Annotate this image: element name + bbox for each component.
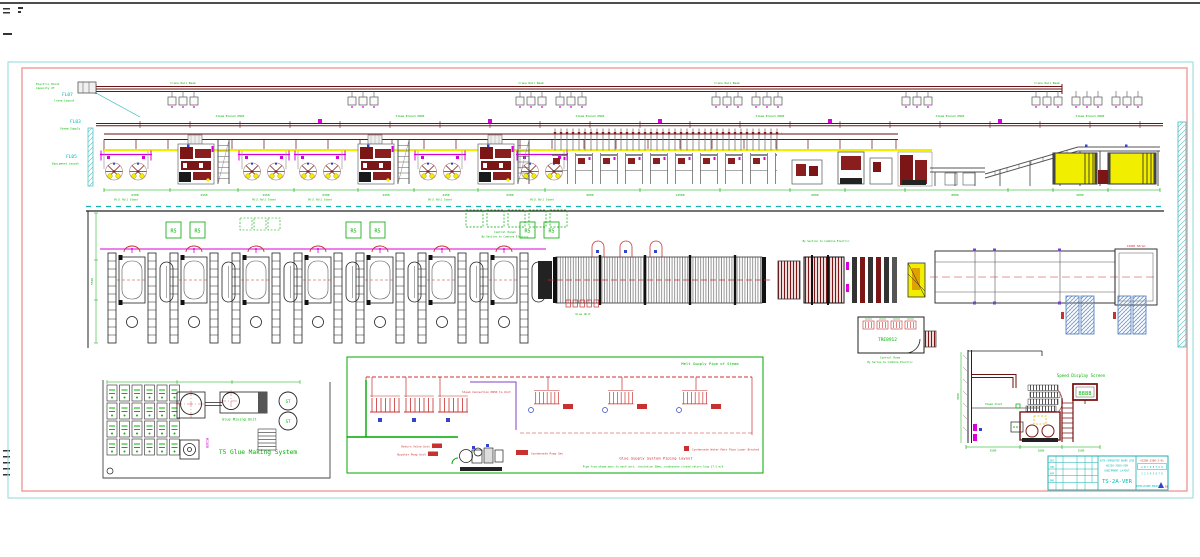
pallet-stacks: [1061, 296, 1146, 334]
tb-version: TS-2A-VER: [1102, 479, 1132, 485]
mill-roll-station: [414, 151, 466, 181]
tb-cell: PRO: [1050, 480, 1055, 483]
dim-label: 9000: [586, 193, 593, 197]
speed-screen-label: Speed Display Screen: [1057, 373, 1106, 378]
control-room-code: TRE8912: [878, 337, 897, 343]
elevation-view: FL05 Equipment Layout: [52, 129, 1160, 202]
level-label-fl03: FL03: [70, 119, 81, 125]
control-panel-subnote: By Section to Combine Electric: [482, 235, 529, 239]
tb-model: WJ250-2500-V5B: [1106, 464, 1128, 468]
stand-label: RS: [170, 229, 176, 235]
stacker-unit-2: [1108, 153, 1156, 184]
speed-dim: 2500: [990, 449, 997, 453]
condensate-bracket-tag: Condensate Water Main Pipe Lower Bracket: [692, 448, 760, 452]
piping-diagram: Melt Supply Pipe of Steam Steam Connecti…: [347, 357, 763, 473]
crane-note: Crane Rail Beam: [170, 81, 196, 85]
stand-label: RS: [194, 229, 200, 235]
glue-manifold: [682, 390, 708, 404]
glue-unit-note: Glue Unit: [575, 312, 590, 316]
stacker-unit-1: [1053, 153, 1097, 184]
level-label-fl05: FL05: [66, 154, 77, 160]
station-note: Mill Roll Stand: [530, 198, 554, 202]
level-note-fl05: Equipment Layout: [52, 162, 79, 166]
tb-letter-row: A B C D E F G H: [1141, 466, 1163, 469]
staircase: [258, 429, 276, 450]
tb-drawing-name: EQUIPMENT LAYOUT: [1105, 469, 1130, 473]
plan-unwind-station: [108, 246, 173, 343]
mill-roll-station: [294, 151, 346, 181]
bridge-machines: [552, 153, 777, 184]
station-note: Mill Roll Stand: [114, 198, 138, 202]
right-wall-strip: [1178, 122, 1186, 347]
single-facer-machine: [178, 135, 214, 184]
glue-manifold: [438, 396, 468, 412]
glue-manifold: [404, 396, 434, 412]
speed-dim: 1500: [1078, 449, 1085, 453]
access-ladder: [1062, 398, 1073, 442]
crane-note: Crane Rail Beam: [1034, 81, 1060, 85]
control-panel-note: Control Panel: [494, 230, 516, 234]
steam-inlet-note: Steam Inlet: [985, 402, 1003, 406]
station-note: Mill Roll Stand: [308, 198, 332, 202]
storage-tank-label: ST: [286, 399, 291, 404]
stand-label: RS: [374, 229, 380, 235]
steam-note: Steam Branch DN40: [756, 114, 785, 118]
dim-label: 6300: [322, 193, 329, 197]
dim-label: 2450: [262, 193, 269, 197]
speed-display-section: Steam Inlet Speed Display Screen 8888 25…: [956, 350, 1106, 453]
hoist-note-2: Capacity 2T: [36, 86, 55, 90]
dim-label: 14500: [675, 193, 684, 197]
crane-note: Crane Rail Beam: [518, 81, 544, 85]
mill-roll-station: [100, 151, 152, 181]
crane-rail-row: Electric Hoist Capacity 2T Crane Rail Be…: [36, 81, 1142, 117]
plan-unwind-station: [356, 246, 421, 343]
hanger-trio: [516, 91, 546, 108]
mill-roll-station: [238, 151, 290, 181]
level-note-fl07: Crane Layout: [54, 99, 75, 103]
mixer-label: MIXER: [205, 438, 209, 449]
dim-label: 5000: [1076, 193, 1083, 197]
single-facer-section-view: [1020, 385, 1063, 442]
piping-title-green: Pipe from steam main to each unit, insul…: [583, 465, 724, 469]
stand-label: RS: [548, 229, 554, 235]
steam-note: Steam Branch DN40: [396, 114, 425, 118]
speed-vertical-dim: 3500: [956, 393, 960, 400]
steam-note: Steam Branch DN40: [1076, 114, 1105, 118]
steam-note: Steam Branch DN40: [216, 114, 245, 118]
stacker-gap-unit: [1098, 170, 1108, 184]
glue-machine-cluster: [792, 152, 932, 186]
dim-label: 2450: [200, 193, 207, 197]
stand-label: RS: [350, 229, 356, 235]
control-room-subnote: By Series to Combine Electric: [867, 360, 913, 364]
booster-pump-tag: Booster Pump Unit: [397, 453, 426, 457]
dim-label: 8000: [951, 193, 958, 197]
plan-unwind-station: [294, 246, 359, 343]
tb-cell: DES: [1050, 460, 1055, 463]
dim-label: 6300: [506, 193, 513, 197]
hanger-trio: [556, 91, 586, 108]
rotary-section: [778, 255, 925, 305]
drawing-canvas: Electric Hoist Capacity 2T Crane Rail Be…: [0, 0, 1200, 557]
tb-cell: APP: [1050, 473, 1055, 476]
platform-ladder: [398, 140, 409, 184]
glue-manifold: [370, 396, 400, 412]
elevation-dimension-line: 6300 2450 2450 6300 2450 2450 6300 9000 …: [104, 188, 1160, 202]
low-conveyor: [930, 168, 985, 186]
wall-column: [88, 128, 93, 186]
piping-title-red: Glue Supply System Piping Layout: [619, 456, 692, 461]
paper-bridge: [552, 129, 782, 151]
glue-area-label: Glue Mixing Unit: [222, 418, 257, 422]
single-facer-machine: [358, 135, 394, 184]
condensate-pump-tag: Condensate Pump Set: [531, 452, 563, 456]
double-facer: Glue Unit: [538, 241, 770, 316]
plan-unwind-station: [418, 246, 483, 343]
hanger-trio: [1112, 91, 1142, 108]
level-note-fl03: Steam Supply: [60, 127, 81, 131]
line-speed-note: 14000 50rpm: [1127, 244, 1146, 248]
dim-label: 2450: [382, 193, 389, 197]
speed-screen-value: 8888: [1078, 391, 1091, 397]
station-note: Mill Roll Stand: [252, 198, 276, 202]
tb-cell: CHK: [1050, 466, 1055, 469]
steam-note: Steam Branch DN40: [576, 114, 605, 118]
hoist-box: [78, 82, 96, 93]
glue-manifold: [608, 390, 634, 404]
glue-kitchen: Glue Mixing Unit ST ST MIXER T5 Glue Mak…: [103, 380, 330, 478]
crane-note: Crane Rail Beam: [714, 81, 740, 85]
storage-tank-label: ST: [286, 419, 291, 424]
title-block: DES CHK APP PRO AUTO CORRUGATED BOARD LI…: [1048, 456, 1169, 490]
single-facer-machine: [478, 135, 514, 184]
speed-screen: 8888: [1073, 384, 1097, 404]
speed-dim: 1800: [1038, 449, 1045, 453]
glue-manifold: [534, 390, 560, 404]
condensate-pump-skid: [452, 444, 503, 471]
steam-connection-tag: Steam Connection DN50 to Unit: [462, 390, 511, 394]
station-note: Mill Roll Stand: [428, 198, 452, 202]
plan-unwind-station: [480, 246, 545, 343]
hanger-trio: [1072, 91, 1102, 108]
tb-number-row: 1 2 3 4 5 6 7 8: [1141, 473, 1163, 476]
platform-ladder: [218, 140, 229, 184]
steam-note: Steam Branch DN40: [936, 114, 965, 118]
dim-label: 6300: [131, 193, 138, 197]
tb-drawing-number: A2200-2306-2-01: [1140, 459, 1164, 463]
dim-label: 2450: [442, 193, 449, 197]
level-label-fl07: FL07: [62, 92, 73, 98]
piping-header: Melt Supply Pipe of Steam: [681, 361, 739, 366]
plan-vertical-dim: 5500: [90, 278, 94, 285]
combine-electric-note: By Section to Combine Electric: [803, 239, 850, 243]
hanger-trio: [712, 91, 742, 108]
tb-line1: AUTO CORRUGATED BOARD LINE: [1100, 460, 1135, 463]
hanger-trio: [168, 91, 198, 108]
hanger-trio: [1032, 91, 1062, 108]
return-valve-tag: Return Valve Unit: [401, 445, 430, 449]
control-room-note: Control Room: [880, 356, 901, 360]
cad-drawing-sheet: Electric Hoist Capacity 2T Crane Rail Be…: [0, 0, 1200, 557]
stand-label: RS: [524, 229, 530, 235]
logo-text: DL: [1165, 485, 1169, 489]
plan-unwind-station: [170, 246, 235, 343]
control-room: TRE8912 Control Room By Series to Combin…: [858, 317, 936, 364]
hanger-trio: [752, 91, 782, 108]
hanger-trio: [902, 91, 932, 108]
hanger-trio: [348, 91, 378, 108]
dim-label: 6000: [811, 193, 818, 197]
plan-unwind-station: [232, 246, 297, 343]
glue-system-title: T5 Glue Making System: [219, 449, 298, 456]
